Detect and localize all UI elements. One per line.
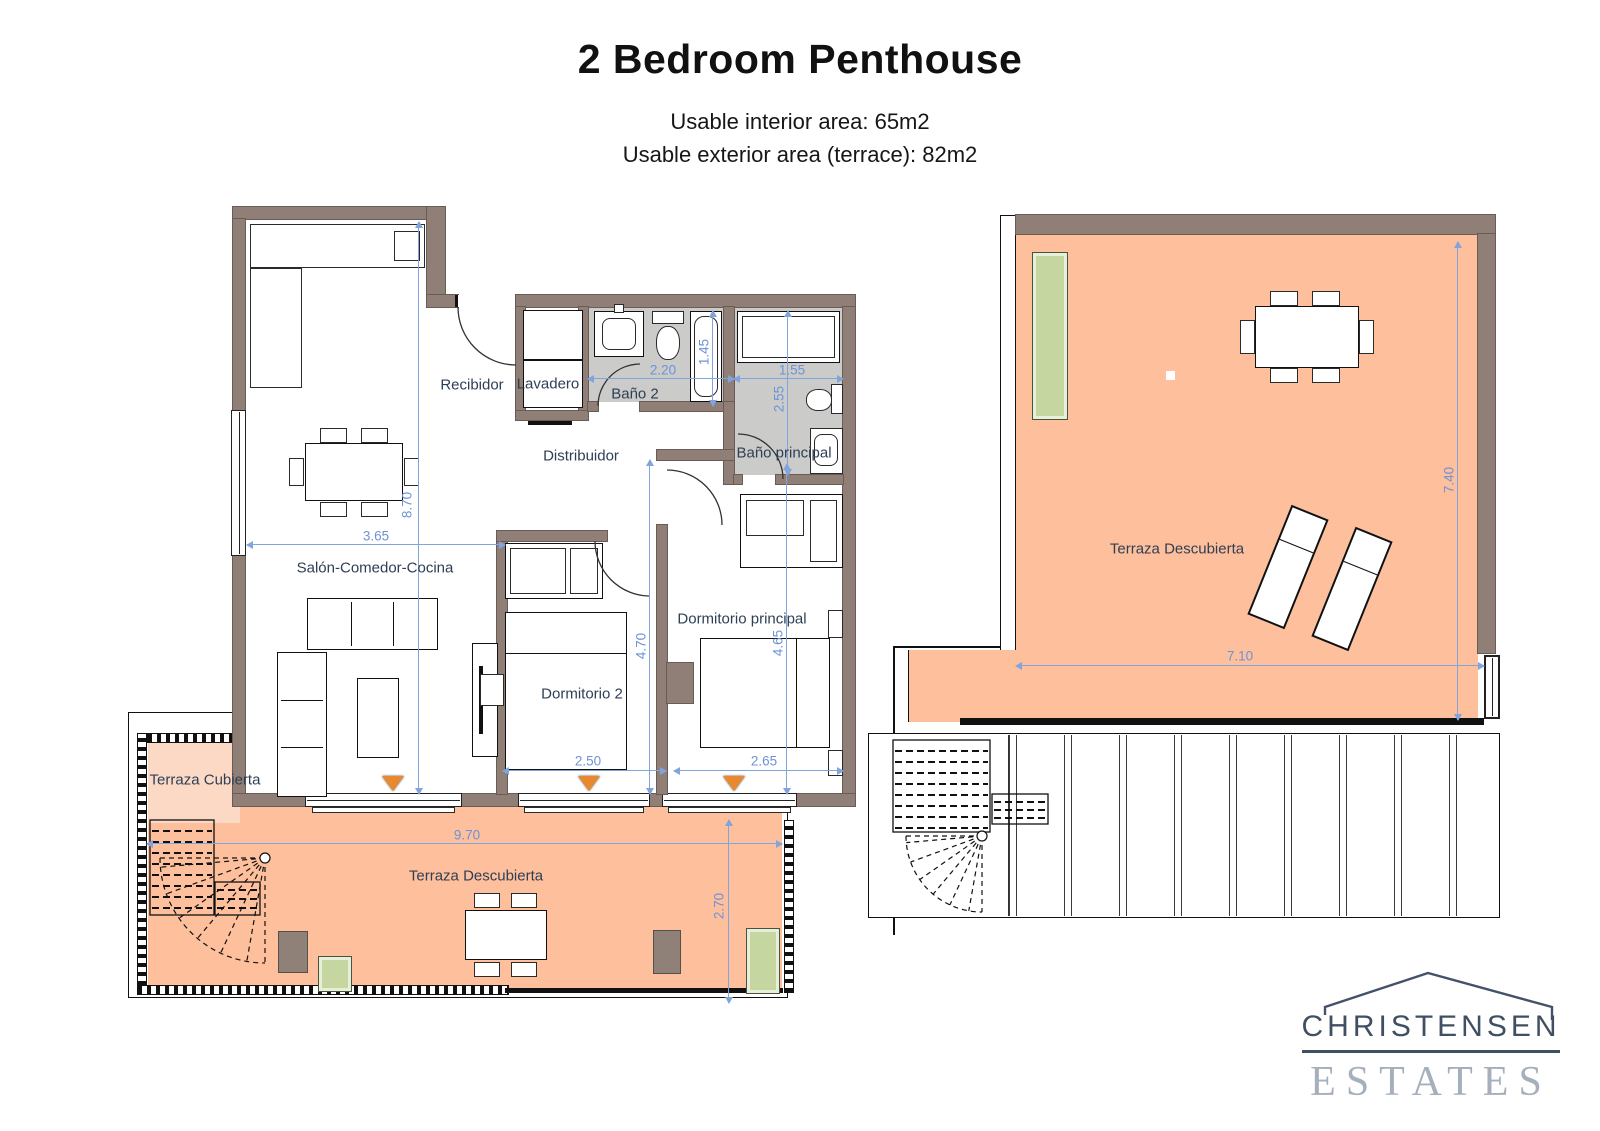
brand-divider	[1302, 1050, 1560, 1053]
outdoor-chair	[1270, 291, 1298, 306]
room-label-recibidor: Recibidor	[440, 377, 503, 394]
window	[305, 793, 462, 807]
threshold	[312, 807, 455, 813]
wall	[233, 207, 445, 219]
dimension-label: 1.45	[697, 339, 712, 365]
brand-logo: CHRISTENSEN ESTATES	[1290, 956, 1572, 1116]
coffee-table	[357, 678, 399, 758]
window-marker	[382, 776, 404, 791]
dimension-label: 2.20	[650, 363, 676, 378]
dimension-label: 4.65	[771, 630, 786, 656]
threshold	[524, 807, 644, 813]
header: 2 Bedroom Penthouse Usable interior area…	[0, 36, 1600, 171]
dining-table	[305, 443, 403, 501]
room-label-roof-terraza: Terraza Descubierta	[1110, 541, 1244, 558]
outdoor-chair	[474, 962, 500, 977]
chair	[404, 458, 419, 486]
exterior-area-text: Usable exterior area (terrace): 82m2	[0, 138, 1600, 171]
green-planter	[318, 956, 352, 992]
room-label-terraza-descubierta: Terraza Descubierta	[409, 868, 543, 885]
terrace-railing	[784, 820, 794, 993]
spiral-staircase	[890, 736, 1055, 916]
dimension-line	[1016, 665, 1484, 666]
dimension-line	[786, 464, 787, 794]
parapet	[1000, 215, 1016, 652]
dimension-label: 2.55	[772, 386, 787, 412]
pergola-slats	[1008, 735, 1499, 916]
outdoor-chair	[474, 893, 500, 908]
outdoor-chair	[1312, 368, 1340, 383]
kitchen-counter	[250, 268, 302, 388]
dimension-label: 1.55	[779, 363, 805, 378]
dimension-line	[649, 460, 650, 794]
room-label-terraza-cubierta: Terraza Cubierta	[150, 772, 261, 789]
dimension-line	[728, 820, 729, 1003]
chair	[320, 502, 347, 517]
room-label-dormitorio2: Dormitorio 2	[541, 686, 623, 703]
dimension-label: 7.10	[1227, 649, 1253, 664]
wall	[460, 794, 520, 806]
room-label-lavadero: Lavadero	[517, 376, 580, 393]
dimension-line	[147, 843, 782, 844]
outdoor-chair	[1270, 368, 1298, 383]
window-marker	[723, 776, 745, 791]
wall	[1016, 215, 1495, 234]
door	[1484, 655, 1500, 719]
dimension-line	[1457, 242, 1458, 720]
dimension-label: 7.40	[1442, 467, 1457, 493]
dimension-line	[734, 378, 843, 379]
interior-area-text: Usable interior area: 65m2	[0, 105, 1600, 138]
planter	[278, 931, 308, 973]
dimension-line	[503, 770, 666, 771]
dimension-label: 3.65	[363, 529, 389, 544]
terrace-edge-line	[960, 718, 1484, 725]
boundary-line	[893, 646, 1003, 648]
nightstand	[480, 674, 504, 706]
room-label-bano2: Baño 2	[611, 386, 659, 403]
outdoor-chair	[1240, 320, 1255, 354]
outdoor-chair	[1312, 291, 1340, 306]
roof-terrace-floor	[908, 650, 1016, 722]
kitchen-sink	[394, 231, 420, 261]
dimension-line	[418, 222, 419, 794]
green-planter	[746, 928, 780, 994]
outdoor-chair	[1359, 320, 1374, 354]
planter	[653, 930, 681, 974]
brand-name: CHRISTENSEN	[1290, 1010, 1572, 1044]
drain-dot	[1166, 371, 1175, 380]
terrace-edge-line	[505, 988, 783, 993]
dimension-label: 2.65	[751, 754, 777, 769]
window	[518, 793, 650, 807]
chair	[289, 458, 304, 486]
window	[662, 793, 797, 807]
sofa	[277, 652, 327, 797]
room-label-bano-principal: Baño principal	[736, 445, 831, 462]
outdoor-table	[465, 910, 547, 960]
wall	[1478, 234, 1495, 653]
dimension-line	[247, 544, 505, 545]
dimension-label: 2.70	[712, 893, 727, 919]
dimension-line	[712, 311, 713, 406]
dimension-label: 8.70	[400, 492, 415, 518]
wall-pilaster	[667, 663, 693, 703]
outdoor-chair	[511, 893, 537, 908]
chair	[361, 502, 388, 517]
bed	[700, 638, 830, 748]
dimension-label: 9.70	[454, 828, 480, 843]
brand-word: ESTATES	[1290, 1058, 1572, 1106]
window-marker	[578, 776, 600, 791]
window	[231, 410, 246, 556]
room-label-salon: Salón-Comedor-Cocina	[297, 560, 454, 577]
room-label-distribuidor: Distribuidor	[543, 448, 619, 465]
outdoor-table	[1255, 306, 1359, 368]
dimension-line	[674, 770, 843, 771]
chair	[361, 428, 388, 443]
threshold	[668, 807, 791, 813]
dimension-label: 2.50	[575, 754, 601, 769]
terrace-railing	[147, 733, 241, 743]
floorplan-page: 2 Bedroom Penthouse Usable interior area…	[0, 0, 1600, 1131]
spiral-staircase	[148, 812, 284, 990]
dimension-label: 4.70	[634, 633, 649, 659]
green-planter	[1032, 252, 1068, 420]
wall	[795, 794, 855, 806]
room-label-dormitorio-principal: Dormitorio principal	[677, 611, 806, 628]
page-title: 2 Bedroom Penthouse	[0, 36, 1600, 83]
terrace-railing	[137, 733, 147, 995]
chair	[320, 428, 347, 443]
outdoor-chair	[511, 962, 537, 977]
